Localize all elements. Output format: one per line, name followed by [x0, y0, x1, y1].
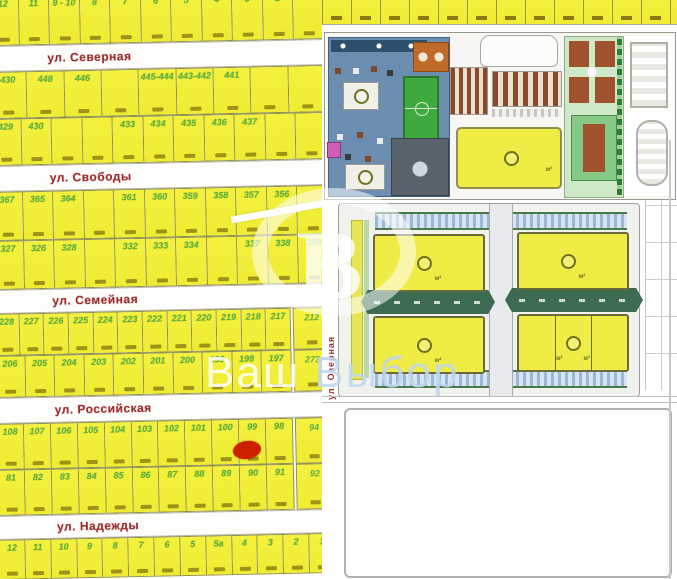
- plot-number: 223: [118, 314, 142, 324]
- lot-area-label: м²: [556, 356, 562, 362]
- area-mark: [168, 504, 179, 508]
- plot-cell: 103: [131, 422, 159, 467]
- area-mark: [124, 387, 135, 391]
- plot-cell: 98: [266, 419, 294, 464]
- area-mark: [276, 152, 287, 156]
- plot-number: 98: [266, 421, 292, 432]
- plot-number: 225: [69, 315, 93, 325]
- area-mark: [101, 346, 112, 350]
- plot-cell: 434: [143, 116, 174, 162]
- area-mark: [62, 156, 73, 160]
- plot-number: 200: [173, 355, 202, 366]
- area-mark: [279, 276, 290, 280]
- plot-number: 4: [202, 0, 232, 5]
- plot-cell: 105: [78, 423, 106, 468]
- plot-map: 12119 - 108765432 ул. Северная 430448446…: [0, 0, 336, 579]
- plot-cell: 437: [235, 114, 266, 160]
- area-mark: [155, 229, 166, 233]
- lot-area-label: м²: [435, 358, 441, 364]
- street-label-nadezhdy: ул. Надежды: [0, 518, 139, 535]
- plot-cell: [52, 118, 83, 164]
- area-mark: [167, 458, 178, 462]
- plot-row-c2: 327326328332333334337338339: [0, 234, 330, 290]
- area-mark: [249, 502, 260, 506]
- amenities-block: м²: [324, 32, 676, 200]
- yellow-lot-divided: м² м²: [517, 314, 629, 372]
- plot-number: 222: [143, 313, 167, 323]
- plot-number: 430: [21, 121, 51, 132]
- area-mark: [3, 111, 14, 115]
- plot-cell: 9 - 10: [49, 0, 81, 44]
- area-mark: [243, 33, 254, 37]
- area-mark: [65, 388, 76, 392]
- plot-number: 12: [0, 0, 18, 9]
- area-mark: [4, 282, 15, 286]
- plot-cell: 359: [175, 189, 207, 237]
- area-mark: [125, 230, 136, 234]
- area-mark: [195, 504, 206, 508]
- yellow-lot: м²: [373, 234, 485, 292]
- plot-number: 327: [0, 243, 23, 254]
- plot-number: 87: [159, 469, 185, 480]
- plot-cell: 361: [114, 190, 146, 238]
- central-buildings: м²: [450, 35, 562, 195]
- building-cluster-2x2: [569, 41, 615, 103]
- area-mark: [87, 506, 98, 510]
- plot-row-b2: 429430433434435436437: [0, 112, 327, 166]
- area-mark: [115, 108, 126, 112]
- building-orange: [413, 42, 449, 72]
- area-mark: [33, 571, 44, 575]
- plot-number: 337: [237, 238, 267, 249]
- plot-cell: 6: [141, 0, 173, 42]
- plot-cell: 90: [240, 465, 268, 510]
- area-mark: [247, 227, 258, 231]
- plot-cell: 365: [23, 192, 55, 240]
- plot-number: 105: [78, 425, 104, 436]
- area-mark: [156, 278, 167, 282]
- area-mark: [41, 110, 52, 114]
- plot-number: [85, 241, 115, 242]
- plot-cell: 197: [262, 351, 292, 392]
- plot-cell: 11: [25, 540, 52, 579]
- lot-area-label: м²: [579, 274, 585, 280]
- plot-number: 201: [143, 355, 172, 366]
- lot-area-label: м²: [546, 167, 552, 173]
- plot-number: 359: [175, 191, 205, 202]
- plot-cell: [82, 117, 113, 163]
- plot-number: 220: [192, 312, 216, 322]
- plot-cell: 430: [0, 72, 28, 118]
- area-mark: [222, 503, 233, 507]
- plot-cell: 7: [129, 538, 156, 577]
- plot-number: 199: [203, 354, 232, 365]
- plot-number: [84, 192, 114, 193]
- townhouse-row-right: [492, 71, 562, 107]
- area-mark: [90, 36, 101, 40]
- plot-number: 360: [145, 191, 175, 202]
- plot-cell: 219: [217, 310, 243, 351]
- area-mark: [94, 388, 105, 392]
- plot-number: 445-444: [139, 71, 176, 82]
- plot-cell: 327: [0, 241, 25, 289]
- area-mark: [245, 152, 256, 156]
- area-mark: [175, 344, 186, 348]
- plot-number: 435: [174, 118, 204, 129]
- area-mark: [85, 570, 96, 574]
- plot-cell: 8: [103, 538, 130, 577]
- plot-number: 443-442: [176, 70, 213, 81]
- plot-cell: 367: [0, 192, 24, 240]
- area-mark: [154, 154, 165, 158]
- plot-number: [102, 72, 138, 73]
- area-mark: [59, 570, 70, 574]
- plot-cell: 5: [180, 537, 207, 576]
- area-mark: [278, 227, 289, 231]
- area-mark: [308, 226, 319, 230]
- plot-number: 356: [267, 189, 297, 200]
- plot-number: 448: [27, 74, 64, 85]
- area-mark: [265, 105, 276, 109]
- plot-cell: 328: [54, 240, 86, 288]
- area-mark: [213, 385, 224, 389]
- plot-cell: 334: [176, 238, 208, 286]
- plot-cell: 2: [284, 534, 311, 573]
- street-label-svobody: ул. Свободы: [0, 169, 132, 186]
- plot-cell: [207, 237, 239, 285]
- plot-cell: 206: [0, 356, 26, 397]
- plot-block-d: 228227226225224223222221220219218217 206…: [0, 307, 332, 398]
- plot-cell: 108: [0, 424, 25, 469]
- plot-number: 107: [24, 426, 50, 437]
- area-mark: [141, 505, 152, 509]
- plot-cell: 221: [167, 311, 193, 352]
- plot-cell: 5: [171, 0, 203, 41]
- area-mark: [153, 386, 164, 390]
- building-outline-u: [630, 42, 668, 108]
- area-mark: [309, 275, 320, 279]
- area-mark: [32, 157, 43, 161]
- plot-number: 83: [52, 471, 78, 482]
- plot-cell: 4: [232, 536, 259, 575]
- yellow-strip: [351, 220, 363, 380]
- plot-number: 224: [93, 314, 117, 324]
- area-mark: [224, 343, 235, 347]
- area-mark: [292, 566, 303, 570]
- plot-cell: 203: [84, 355, 114, 396]
- plot-number: 11: [25, 542, 50, 553]
- lot-number-circle: [417, 256, 432, 271]
- area-mark: [306, 151, 317, 155]
- area-mark: [187, 278, 198, 282]
- street-label-vertical: ул. Озерная: [326, 242, 336, 400]
- plot-cell: 107: [24, 424, 52, 469]
- area-mark: [5, 390, 16, 394]
- area-mark: [150, 345, 161, 349]
- plot-cell: 199: [203, 352, 233, 393]
- area-mark: [95, 280, 106, 284]
- plot-cell: [293, 0, 325, 39]
- plot-number: 226: [44, 315, 68, 325]
- plot-cell: 12: [0, 0, 19, 45]
- plot-number: 3: [258, 537, 283, 548]
- area-mark: [64, 231, 75, 235]
- plot-number: 333: [146, 240, 176, 251]
- area-mark: [1, 158, 12, 162]
- plot-cell: 443-442: [176, 68, 214, 114]
- plot-number: 206: [0, 358, 24, 369]
- plot-cell: 200: [173, 353, 203, 394]
- plot-cell: [288, 66, 326, 112]
- area-mark: [184, 154, 195, 158]
- area-mark: [199, 343, 210, 347]
- right-edge-line: [669, 140, 671, 579]
- parking-strip: [375, 212, 495, 230]
- area-mark: [242, 385, 253, 389]
- plot-number: 202: [114, 356, 143, 367]
- plot-cell: 7: [110, 0, 142, 42]
- plot-number: 82: [25, 472, 51, 483]
- area-mark: [29, 37, 40, 41]
- lot-number-circle: [417, 338, 432, 353]
- plot-cell: 333: [146, 238, 178, 286]
- area-mark: [221, 457, 232, 461]
- parking-hatch: [492, 109, 560, 117]
- area-mark: [34, 281, 45, 285]
- lot-number-circle: [566, 336, 581, 351]
- lot-area-label: м²: [435, 276, 441, 282]
- plot-cell: 85: [105, 468, 133, 513]
- plot-cell: 83: [52, 469, 80, 514]
- area-mark: [35, 389, 46, 393]
- plot-cell: 445-444: [139, 69, 177, 115]
- green-courtyard: [564, 36, 624, 198]
- plot-number: 10: [51, 541, 76, 552]
- plot-cell: [101, 70, 139, 116]
- divider-line: [322, 396, 677, 403]
- plot-number: 219: [217, 312, 241, 322]
- plot-number: 108: [0, 426, 23, 437]
- plot-cell: 5а: [206, 536, 233, 575]
- plot-cell: 3: [258, 535, 285, 574]
- plot-cell: 360: [145, 189, 177, 237]
- residential-quarter: м² м² м² м² м²: [338, 203, 640, 397]
- plot-number: 6: [154, 539, 179, 550]
- plot-cell: 101: [185, 420, 213, 465]
- area-mark: [3, 233, 14, 237]
- plot-number: 2: [263, 0, 293, 3]
- area-mark: [273, 32, 284, 36]
- green-median-left: [361, 290, 495, 314]
- plot-cell: 84: [79, 469, 107, 514]
- plot-number: 334: [176, 240, 206, 251]
- area-mark: [51, 347, 62, 351]
- area-mark: [217, 277, 228, 281]
- area-mark: [126, 279, 137, 283]
- plot-number: 86: [132, 470, 158, 481]
- plot-number: 84: [79, 471, 105, 482]
- plot-number: 81: [0, 472, 24, 483]
- area-mark: [2, 348, 13, 352]
- area-mark: [121, 35, 132, 39]
- area-mark: [275, 456, 286, 460]
- plot-row-d2: 206205204203202201200199198197: [0, 350, 292, 398]
- plot-number: 198: [232, 353, 261, 364]
- plot-cell: 433: [113, 117, 144, 163]
- plot-number: 100: [212, 422, 238, 433]
- street-label-rossiyskaya: ул. Российская: [0, 401, 152, 418]
- plot-cell: 441: [213, 68, 251, 114]
- playground-equipment-icons: [335, 68, 341, 74]
- plot-number: 102: [158, 423, 184, 434]
- plot-cell: 227: [19, 314, 45, 355]
- plot-number: 446: [64, 73, 101, 84]
- plot-cell: 436: [204, 115, 235, 161]
- plot-number: 88: [186, 468, 212, 479]
- area-mark: [59, 460, 70, 464]
- plot-number: 338: [268, 238, 298, 249]
- plot-number: 203: [84, 357, 113, 368]
- area-mark: [0, 38, 10, 42]
- area-mark: [216, 228, 227, 232]
- plot-number: 5: [171, 0, 201, 5]
- plot-cell: 430: [21, 119, 52, 165]
- plot-number: 7: [129, 540, 154, 551]
- plot-cell: 201: [143, 353, 173, 394]
- plot-cell: 205: [25, 356, 55, 397]
- plot-number: 221: [167, 313, 191, 323]
- plot-cell: 87: [159, 467, 187, 512]
- plot-number: 364: [53, 193, 83, 204]
- area-mark: [240, 567, 251, 571]
- area-mark: [227, 106, 238, 110]
- plot-number: 99: [239, 421, 265, 432]
- plot-cell: 222: [143, 311, 169, 352]
- plot-number: 227: [19, 316, 43, 326]
- area-mark: [125, 345, 136, 349]
- empty-block: [344, 408, 672, 578]
- plot-number: 8: [80, 0, 110, 7]
- parking-strip: [509, 212, 627, 230]
- area-mark: [111, 569, 122, 573]
- area-mark: [215, 153, 226, 157]
- area-mark: [153, 107, 164, 111]
- plot-number: 217: [266, 311, 290, 321]
- lot-area-label: м²: [584, 356, 590, 362]
- plot-strip-top-right: [322, 0, 677, 25]
- lot-number-circle: [561, 254, 576, 269]
- area-mark: [188, 568, 199, 572]
- plot-number: [251, 69, 287, 70]
- area-mark: [248, 276, 259, 280]
- plot-number: 228: [0, 316, 19, 326]
- building-on-lawn: [571, 115, 617, 181]
- marker-circle: [354, 89, 369, 104]
- area-mark: [214, 567, 225, 571]
- plot-number: 441: [214, 70, 251, 81]
- plot-number: 91: [267, 467, 293, 478]
- area-mark: [114, 505, 125, 509]
- area-mark: [266, 566, 277, 570]
- plot-number: 11: [19, 0, 49, 8]
- area-mark: [60, 36, 71, 40]
- plot-cell: 9: [77, 539, 104, 578]
- plot-cell: 358: [206, 188, 238, 236]
- plot-number: 104: [105, 424, 131, 435]
- plot-cell: 364: [53, 191, 85, 239]
- plot-cell: 226: [44, 313, 70, 354]
- plot-number: 9: [77, 541, 102, 552]
- outlined-buildings: [624, 36, 673, 196]
- plot-number: 365: [23, 194, 53, 205]
- yellow-lot: м²: [517, 232, 629, 290]
- soccer-field-icon: [403, 76, 439, 140]
- area-mark: [33, 232, 44, 236]
- area-mark: [212, 33, 223, 37]
- plot-cell: 446: [64, 71, 102, 117]
- area-mark: [194, 458, 205, 462]
- plot-number: [288, 68, 324, 69]
- plot-cell: 88: [186, 466, 214, 511]
- area-mark: [304, 31, 315, 35]
- plot-cell: 217: [266, 309, 292, 350]
- street-label-semeynaya: ул. Семейная: [0, 292, 138, 309]
- area-mark: [33, 461, 44, 465]
- plot-cell: 429: [0, 119, 22, 165]
- plot-cell: 218: [241, 309, 267, 350]
- area-mark: [249, 342, 260, 346]
- plot-number: 332: [115, 241, 145, 252]
- plot-row-d1: 228227226225224223222221220219218217: [0, 308, 291, 356]
- building-rounded: [480, 35, 558, 67]
- plot-number: 101: [185, 422, 211, 433]
- area-mark: [7, 508, 18, 512]
- plot-number: [207, 239, 237, 240]
- plot-cell: 337: [237, 236, 269, 284]
- plot-number: 85: [106, 470, 132, 481]
- area-mark: [34, 507, 45, 511]
- building-outline-oval: [636, 120, 668, 186]
- plot-number: 328: [54, 242, 84, 253]
- plot-cell: 2: [263, 0, 295, 39]
- plot-number: 430: [0, 74, 26, 85]
- plot-number: 357: [236, 189, 266, 200]
- playground-zone: [328, 37, 450, 197]
- area-mark: [190, 107, 201, 111]
- plot-cell: 435: [174, 116, 205, 162]
- utility-zone: [391, 138, 449, 196]
- street-label-severnaya: ул. Северная: [0, 49, 132, 66]
- plot-cell: 11: [18, 0, 50, 44]
- area-mark: [78, 109, 89, 113]
- building-white-1: [343, 82, 379, 110]
- area-mark: [272, 384, 283, 388]
- area-mark: [162, 568, 173, 572]
- area-mark: [137, 569, 148, 573]
- plot-number: 367: [0, 194, 22, 205]
- area-mark: [123, 155, 134, 159]
- plot-number: 5а: [206, 538, 231, 549]
- plot-number: [82, 119, 112, 120]
- plot-cell: [85, 239, 117, 287]
- tree-row: [617, 37, 622, 195]
- plot-number: 6: [141, 0, 171, 6]
- plot-number: 326: [24, 243, 54, 254]
- plot-cell: 202: [114, 354, 144, 395]
- plot-cell: 448: [27, 71, 65, 117]
- plot-row-e2: 8182838485868788899091: [0, 464, 295, 516]
- area-mark: [140, 459, 151, 463]
